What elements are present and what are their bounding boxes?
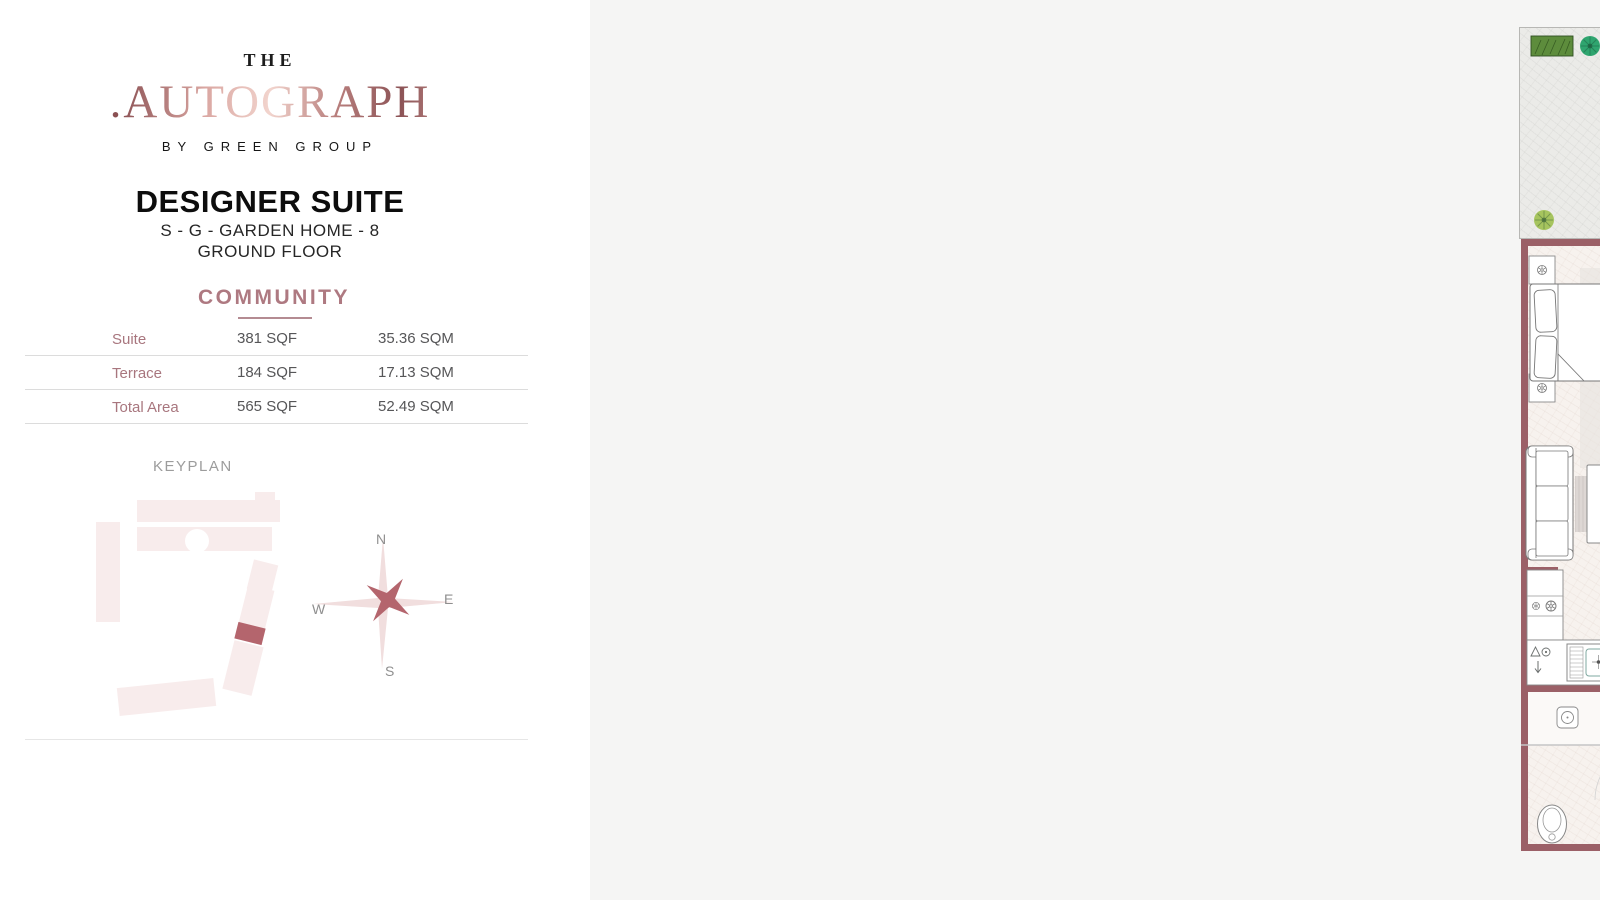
table-row: Suite 381 SQF 35.36 SQM bbox=[25, 322, 528, 356]
room-dimension-living: 457 x 364 bbox=[1578, 419, 1600, 429]
keyplan-building bbox=[117, 678, 216, 716]
keyplan-courtyard bbox=[185, 529, 209, 553]
terrace-bush-corner bbox=[1534, 210, 1554, 230]
community-underline bbox=[238, 317, 312, 319]
row-sqm: 35.36 SQM bbox=[378, 330, 454, 347]
keyplan-building bbox=[255, 492, 275, 506]
row-sqf: 184 SQF bbox=[237, 364, 297, 381]
community-heading: COMMUNITY bbox=[0, 286, 548, 310]
bed bbox=[1530, 284, 1600, 381]
row-label: Total Area bbox=[112, 399, 179, 416]
compass-north: N bbox=[376, 531, 386, 547]
table-row: Terrace 184 SQF 17.13 SQM bbox=[25, 356, 528, 390]
floorplan-panel: A1 bbox=[590, 0, 1600, 900]
brand-kicker: THE bbox=[0, 50, 540, 71]
keyplan-heading: KEYPLAN bbox=[153, 458, 233, 475]
shower-drain bbox=[1557, 707, 1578, 728]
keyplan-building bbox=[96, 522, 120, 622]
sofa bbox=[1526, 446, 1573, 560]
brand-dot: . bbox=[110, 76, 124, 128]
row-sqm: 52.49 SQM bbox=[378, 398, 454, 415]
brand-name-text: AUTOGRAPH bbox=[123, 76, 430, 128]
terrace-shrub bbox=[1580, 36, 1600, 56]
unit-subtitle: S - G - GARDEN HOME - 8 bbox=[0, 221, 540, 241]
dining-table bbox=[1587, 465, 1600, 543]
keyplan-map bbox=[90, 485, 300, 725]
keyplan-building bbox=[222, 640, 263, 696]
info-panel: THE .AUTOGRAPH BY GREEN GROUP DESIGNER S… bbox=[0, 0, 590, 900]
brand-wordmark: .AUTOGRAPH bbox=[0, 75, 540, 129]
row-label: Suite bbox=[112, 331, 146, 348]
planter-left bbox=[1531, 36, 1573, 56]
area-table: Suite 381 SQF 35.36 SQM Terrace 184 SQF … bbox=[25, 322, 528, 424]
brand-logo: THE .AUTOGRAPH BY GREEN GROUP bbox=[0, 50, 540, 154]
compass-east: E bbox=[444, 591, 453, 607]
unit-title: DESIGNER SUITE bbox=[0, 184, 540, 220]
bedside-unit bbox=[1529, 256, 1555, 284]
table-row: Total Area 565 SQF 52.49 SQM bbox=[25, 390, 528, 424]
compass-star bbox=[310, 525, 460, 685]
furniture-layer bbox=[1518, 24, 1600, 874]
kitchen-sink bbox=[1567, 644, 1600, 681]
brand-tagline: BY GREEN GROUP bbox=[0, 139, 540, 154]
toilet bbox=[1538, 805, 1567, 843]
compass-west: W bbox=[312, 601, 325, 617]
compass-south: S bbox=[385, 663, 394, 679]
row-sqf: 381 SQF bbox=[237, 330, 297, 347]
floorplan-drawing: 457 x 364 177 x 364 FR/MW BB LAU bbox=[1518, 24, 1600, 874]
row-sqf: 565 SQF bbox=[237, 398, 297, 415]
row-label: Terrace bbox=[112, 365, 162, 382]
bathroom-door bbox=[1595, 745, 1600, 800]
compass-rose: N E S W bbox=[310, 525, 460, 685]
row-sqm: 17.13 SQM bbox=[378, 364, 454, 381]
room-dimension-kitchen: 177 x 364 bbox=[1594, 598, 1600, 608]
brochure-page: THE .AUTOGRAPH BY GREEN GROUP DESIGNER S… bbox=[0, 0, 1600, 900]
unit-floor: GROUND FLOOR bbox=[0, 242, 540, 262]
divider-line bbox=[25, 739, 528, 740]
